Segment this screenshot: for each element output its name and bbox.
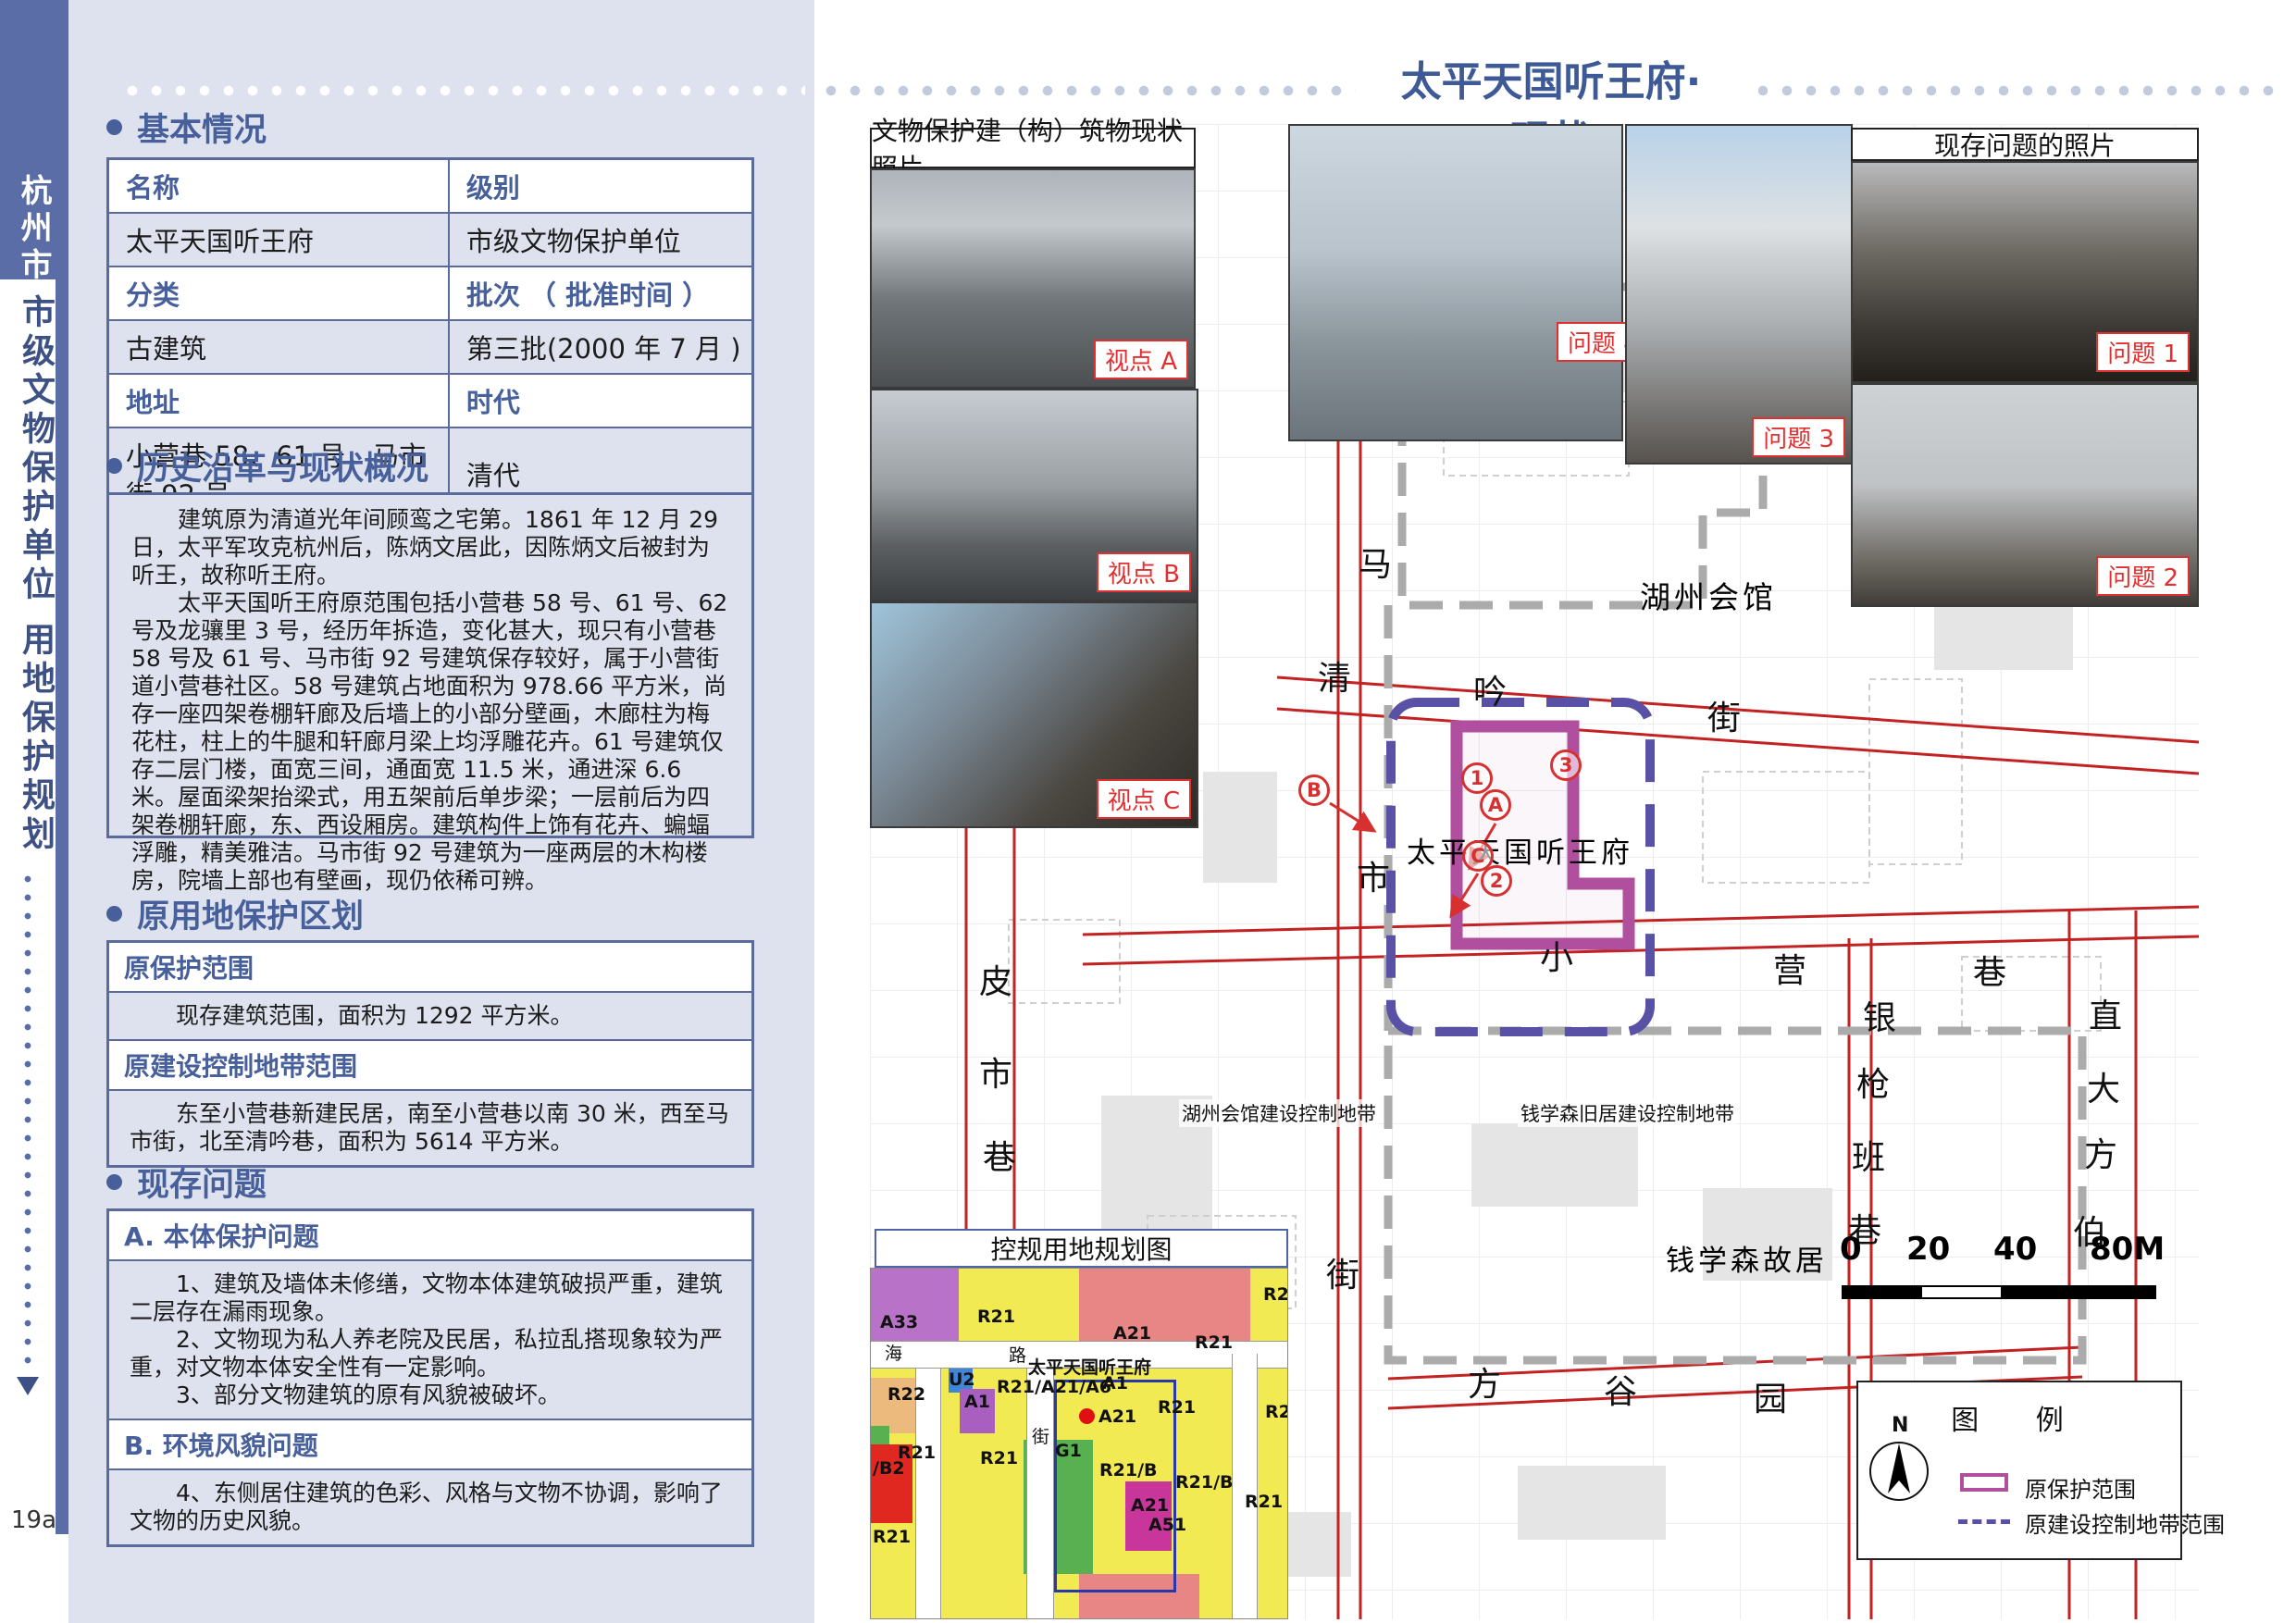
scalebar-tick: 80M (2090, 1231, 2165, 1268)
section-zoning-heading: 原用地保护区划 (106, 890, 364, 937)
street-label: 班 (1852, 1131, 1885, 1179)
landuse-label: A33 (880, 1313, 918, 1332)
landuse-label: R22 (887, 1385, 925, 1404)
landuse-label: A21 (1113, 1324, 1151, 1343)
landuse-map-title: 控规用地规划图 (875, 1229, 1288, 1268)
page-number: 19a (11, 1506, 56, 1534)
scalebar-tick: 0 (1840, 1231, 1862, 1268)
legend-swatch-control (1958, 1519, 2010, 1524)
status-map: 马 清 吟 街 市 小 营 巷 皮 市 巷 银 枪 班 巷 直 大 方 伯 街 … (870, 124, 2199, 1619)
table-cell: 古建筑 (109, 321, 450, 375)
bullet-icon (106, 1174, 122, 1190)
landuse-map: A33 R21 A21 R21 R2 U2 A1 R22 R21/A21/A6 … (870, 1268, 1288, 1619)
photo-tag-problem-3: 问题 3 (1752, 417, 1845, 457)
viewpoint-marker-b: B (1298, 774, 1330, 806)
street-label: 清 (1318, 651, 1351, 700)
table-row: 名称 级别 (109, 160, 751, 214)
landuse-road (1026, 1369, 1054, 1619)
legend-item-control: 原建设控制地带范围 (2025, 1506, 2225, 1539)
legend-swatch-protection (1960, 1473, 2008, 1492)
table-header-cell: 时代 (450, 375, 751, 428)
section-problems-heading: 现存问题 (106, 1158, 267, 1206)
zone-label-huzhou: 湖州会馆建设控制地带 (1179, 1099, 1379, 1127)
landuse-label: R21 (980, 1449, 1018, 1468)
table-header-cell: 地址 (109, 375, 450, 428)
photo-viewpoint-c: 视点 C (870, 601, 1198, 828)
viewpoint-marker-1: 1 (1461, 762, 1493, 794)
dotted-separator (120, 85, 805, 96)
photo-problem-1: 问题 1 (1851, 161, 2199, 383)
photo-tag-viewpoint-b: 视点 B (1097, 552, 1191, 592)
photo-tag-viewpoint-c: 视点 C (1097, 779, 1191, 819)
table-row: 分类 批次 （ 批准时间 ） (109, 267, 751, 321)
sidebar-series-title: 市级文物保护单位 (11, 294, 59, 605)
history-paragraph: 建筑原为清道光年间顾鸾之宅第。1861 年 12 月 29 日，太平军攻克杭州后… (131, 506, 729, 589)
street-label: 方 (1468, 1357, 1501, 1406)
table-row: 古建筑 第三批(2000 年 7 月 ) (109, 321, 751, 375)
north-label: N (1892, 1414, 1908, 1437)
street-label: 谷 (1604, 1365, 1637, 1413)
history-text-box: 建筑原为清道光年间顾鸾之宅第。1861 年 12 月 29 日，太平军攻克杭州后… (106, 492, 754, 838)
street-label: 市 (1357, 851, 1390, 899)
place-label-site: 太平天国听王府 (1407, 829, 1633, 871)
zoning-box: 原保护范围 现存建筑范围，面积为 1292 平方米。 原建设控制地带范围 东至小… (106, 940, 754, 1168)
section-title: 基本情况 (137, 104, 267, 151)
sidebar-series-subtitle: 用地保护规划 (11, 622, 59, 855)
table-cell: 太平天国听王府 (109, 214, 450, 267)
scalebar (1842, 1285, 2156, 1299)
section-basic-heading: 基本情况 (106, 104, 267, 151)
landuse-label: /B2 (873, 1459, 905, 1478)
landuse-street-char: 海 (885, 1344, 902, 1363)
scalebar-segment (1843, 1287, 1922, 1297)
viewpoint-marker-a: A (1480, 789, 1511, 821)
section-history-heading: 历史沿革与现状概况 (106, 442, 428, 489)
landuse-label: A21 (1098, 1407, 1136, 1426)
street-label: 巷 (1973, 946, 2006, 994)
zoning-value-text: 东至小营巷新建民居，南至小营巷以南 30 米，西至马市街，北至清吟巷，面积为 5… (130, 1100, 731, 1156)
section-title: 历史沿革与现状概况 (137, 442, 428, 489)
landuse-label: R21/A21/A6 (997, 1378, 1111, 1396)
street-label: 营 (1773, 944, 1806, 992)
landuse-label: R21 (977, 1307, 1015, 1326)
site-location-dot (1079, 1408, 1095, 1424)
table-cell: 市级文物保护单位 (450, 214, 751, 267)
photo-tag-problem-1: 问题 1 (2096, 332, 2190, 372)
section-title: 原用地保护区划 (137, 890, 364, 937)
landuse-label: G1 (1055, 1442, 1082, 1460)
scalebar-segment (2001, 1287, 2154, 1297)
street-label: 吟 (1473, 665, 1507, 713)
problem-item: 3、部分文物建筑的原有风貌被破坏。 (130, 1381, 731, 1409)
zone-label-qian: 钱学森旧居建设控制地带 (1518, 1099, 1737, 1127)
zoning-row-label: 原保护范围 (109, 943, 751, 993)
sidebar-city-label: 杭州市 (11, 174, 56, 285)
street-label: 市 (979, 1047, 1012, 1096)
problems-b-items: 4、东侧居住建筑的色彩、风格与文物不协调，影响了文物的历史风貌。 (109, 1470, 751, 1544)
landuse-label: R21 (873, 1528, 911, 1546)
landuse-label: R21/B (1175, 1473, 1234, 1492)
street-label: 方 (2084, 1128, 2117, 1176)
problems-box: A. 本体保护问题 1、建筑及墙体未修缮，文物本体建筑破损严重，建筑二层存在漏雨… (106, 1208, 754, 1547)
arrow-down-icon (17, 1377, 39, 1395)
street-label: 街 (1707, 691, 1741, 739)
table-cell: 第三批(2000 年 7 月 ) (450, 321, 751, 375)
street-label: 皮 (979, 955, 1012, 1003)
viewpoint-marker-2: 2 (1481, 865, 1512, 897)
photo-tag-problem-2: 问题 2 (2096, 556, 2190, 596)
street-label: 巷 (983, 1131, 1016, 1179)
compass-icon (1866, 1436, 1932, 1503)
scalebar-segment (1922, 1287, 2001, 1297)
legend-item-protection: 原保护范围 (2025, 1471, 2136, 1504)
zoning-row-value: 现存建筑范围，面积为 1292 平方米。 (109, 993, 751, 1041)
place-label-huzhou: 湖州会馆 (1640, 573, 1777, 617)
dotted-separator (1751, 85, 2286, 96)
photo-problem-3: 问题 3 (1625, 124, 1853, 465)
problem-panel-title: 现存问题的照片 (1851, 128, 2199, 161)
table-row: 地址 时代 (109, 375, 751, 428)
photo-panel-title: 文物保护建（构）筑物现状照片 (870, 128, 1196, 168)
problems-a-items: 1、建筑及墙体未修缮，文物本体建筑破损严重，建筑二层存在漏雨现象。 2、文物现为… (109, 1261, 751, 1420)
photo-problem-2: 问题 2 (1851, 383, 2199, 607)
photo-tag-viewpoint-a: 视点 A (1094, 340, 1188, 379)
scalebar-tick: 20 (1906, 1231, 1950, 1268)
landuse-label: A1 (964, 1393, 990, 1411)
photo-problem-4: 问题 4 (1288, 124, 1623, 441)
zoning-row-value: 东至小营巷新建民居，南至小营巷以南 30 米，西至马市街，北至清吟巷，面积为 5… (109, 1091, 751, 1165)
dotted-separator (819, 85, 1356, 96)
zoning-row-label: 原建设控制地带范围 (109, 1041, 751, 1091)
landuse-label: R2 (1265, 1403, 1288, 1421)
landuse-road (1232, 1354, 1258, 1619)
bullet-icon (106, 906, 122, 922)
street-label: 小 (1540, 931, 1573, 979)
landuse-street-char: 街 (1032, 1428, 1049, 1446)
landuse-label: R21/B (1099, 1461, 1158, 1480)
section-title: 现存问题 (137, 1158, 267, 1206)
landuse-label: R21 (1245, 1493, 1283, 1511)
bullet-icon (106, 119, 122, 135)
landuse-site-label: 太平天国听王府 (1028, 1358, 1151, 1377)
problem-item: 1、建筑及墙体未修缮，文物本体建筑破损严重，建筑二层存在漏雨现象。 (130, 1270, 731, 1326)
landuse-label: R2 (1263, 1285, 1288, 1304)
document-page: 杭州市 市级文物保护单位 用地保护规划 19a 基本情况 名称 级别 太平天国听… (0, 0, 2296, 1623)
map-legend: 图 例 N 原保护范围 原建设控制地带范围 (1856, 1381, 2182, 1560)
landuse-label: R21 (1195, 1333, 1233, 1352)
left-panel: 基本情况 名称 级别 太平天国听王府 市级文物保护单位 分类 批次 （ 批准时间… (68, 0, 814, 1623)
street-label: 大 (2087, 1062, 2120, 1110)
table-header-cell: 分类 (109, 267, 450, 321)
scalebar-tick: 40 (1993, 1231, 2037, 1268)
history-paragraph: 太平天国听王府原范围包括小营巷 58 号、61 号、62 号及龙骧里 3 号，经… (131, 589, 729, 895)
problems-a-label: A. 本体保护问题 (109, 1211, 751, 1261)
viewpoint-marker-3: 3 (1550, 750, 1582, 781)
sidebar-dotted-line (24, 870, 31, 1369)
landuse-label: A1 (1102, 1374, 1128, 1393)
landuse-label: R21 (1158, 1398, 1196, 1417)
landuse-label: A21 (1131, 1496, 1169, 1515)
problem-item: 4、东侧居住建筑的色彩、风格与文物不协调，影响了文物的历史风貌。 (130, 1480, 731, 1535)
street-label: 马 (1359, 538, 1392, 586)
problem-item: 2、文物现为私人养老院及民居，私拉乱搭现象较为严重，对文物本体安全性有一定影响。 (130, 1326, 731, 1381)
landuse-label: U2 (949, 1370, 975, 1389)
table-header-cell: 批次 （ 批准时间 ） (450, 267, 751, 321)
landuse-road (915, 1369, 941, 1619)
table-header-cell: 级别 (450, 160, 751, 214)
landuse-street-char: 路 (1009, 1346, 1026, 1365)
table-row: 太平天国听王府 市级文物保护单位 (109, 214, 751, 267)
table-header-cell: 名称 (109, 160, 450, 214)
street-label: 园 (1754, 1372, 1787, 1420)
photo-viewpoint-b: 视点 B (870, 389, 1198, 601)
photo-viewpoint-a: 视点 A (870, 168, 1196, 389)
street-label: 枪 (1856, 1058, 1890, 1106)
street-label: 银 (1863, 991, 1896, 1039)
place-label-qian: 钱学森故居 (1666, 1237, 1828, 1279)
problems-b-label: B. 环境风貌问题 (109, 1420, 751, 1470)
bullet-icon (106, 458, 122, 474)
street-label: 街 (1326, 1248, 1359, 1296)
street-label: 直 (2089, 989, 2122, 1037)
zoning-value-text: 现存建筑范围，面积为 1292 平方米。 (130, 1002, 731, 1030)
landuse-label: A51 (1148, 1516, 1186, 1534)
